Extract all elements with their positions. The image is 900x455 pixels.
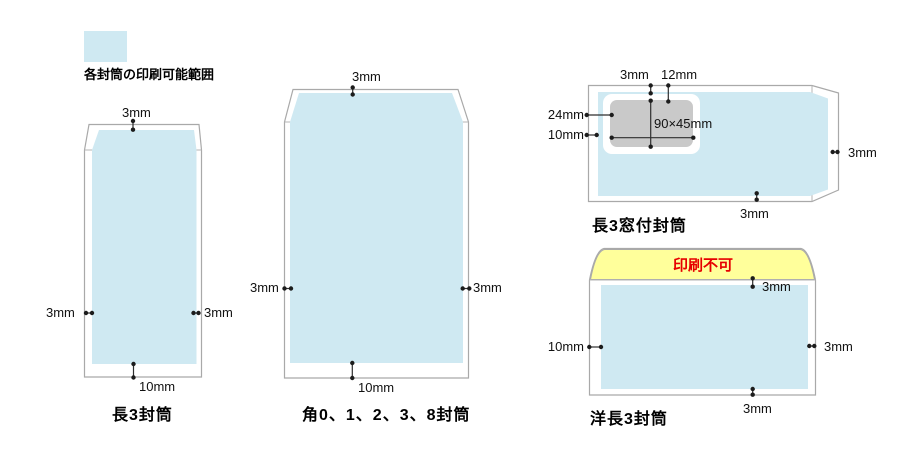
kaku-bottom-margin-label: 10mm <box>358 381 394 395</box>
naga3-printable-area <box>92 130 197 364</box>
kaku-right-margin-label: 3mm <box>473 281 502 295</box>
kaku-left-margin-label: 3mm <box>250 281 279 295</box>
yonaga3-printable-area <box>601 285 808 389</box>
naga3-envelope <box>84 119 202 380</box>
naga3-title: 長3封筒 <box>112 401 173 425</box>
kaku-title: 角0、1、2、3、8封筒 <box>302 401 471 425</box>
yonaga3-bottom-margin-label: 3mm <box>743 402 772 416</box>
naga3mado-window-top-offset-label: 12mm <box>661 68 697 82</box>
naga3-bottom-margin-label: 10mm <box>139 380 175 394</box>
naga3mado-top-margin-label: 3mm <box>620 68 649 82</box>
yonaga3-no-print-label: 印刷不可 <box>673 254 733 275</box>
naga3mado-bottom-margin-label: 3mm <box>740 207 769 221</box>
naga3mado-window-left-offset-label: 24mm <box>546 108 584 122</box>
naga3mado-left-margin-label: 10mm <box>546 128 584 142</box>
naga3-right-margin-label: 3mm <box>204 306 233 320</box>
naga3mado-right-margin-label: 3mm <box>848 146 877 160</box>
kaku-top-margin-label: 3mm <box>352 70 381 84</box>
yonaga3-right-margin-label: 3mm <box>824 340 853 354</box>
kaku-envelope <box>282 85 471 380</box>
envelope-print-area-diagram: 各封筒の印刷可能範囲 3mm 3mm 3mm 10mm 長3封筒 3mm 3mm… <box>0 0 900 455</box>
yonaga3-top-margin-label: 3mm <box>762 280 791 294</box>
yonaga3-left-margin-label: 10mm <box>546 340 584 354</box>
yonaga3-title: 洋長3封筒 <box>590 405 668 429</box>
naga3mado-envelope <box>585 83 840 202</box>
legend-label: 各封筒の印刷可能範囲 <box>84 64 214 83</box>
kaku-printable-area <box>290 93 463 363</box>
naga3-top-margin-label: 3mm <box>122 106 151 120</box>
naga3mado-title: 長3窓付封筒 <box>592 212 687 236</box>
legend-swatch <box>84 31 127 62</box>
naga3mado-window-size-label: 90×45mm <box>654 117 712 131</box>
naga3-left-margin-label: 3mm <box>46 306 75 320</box>
